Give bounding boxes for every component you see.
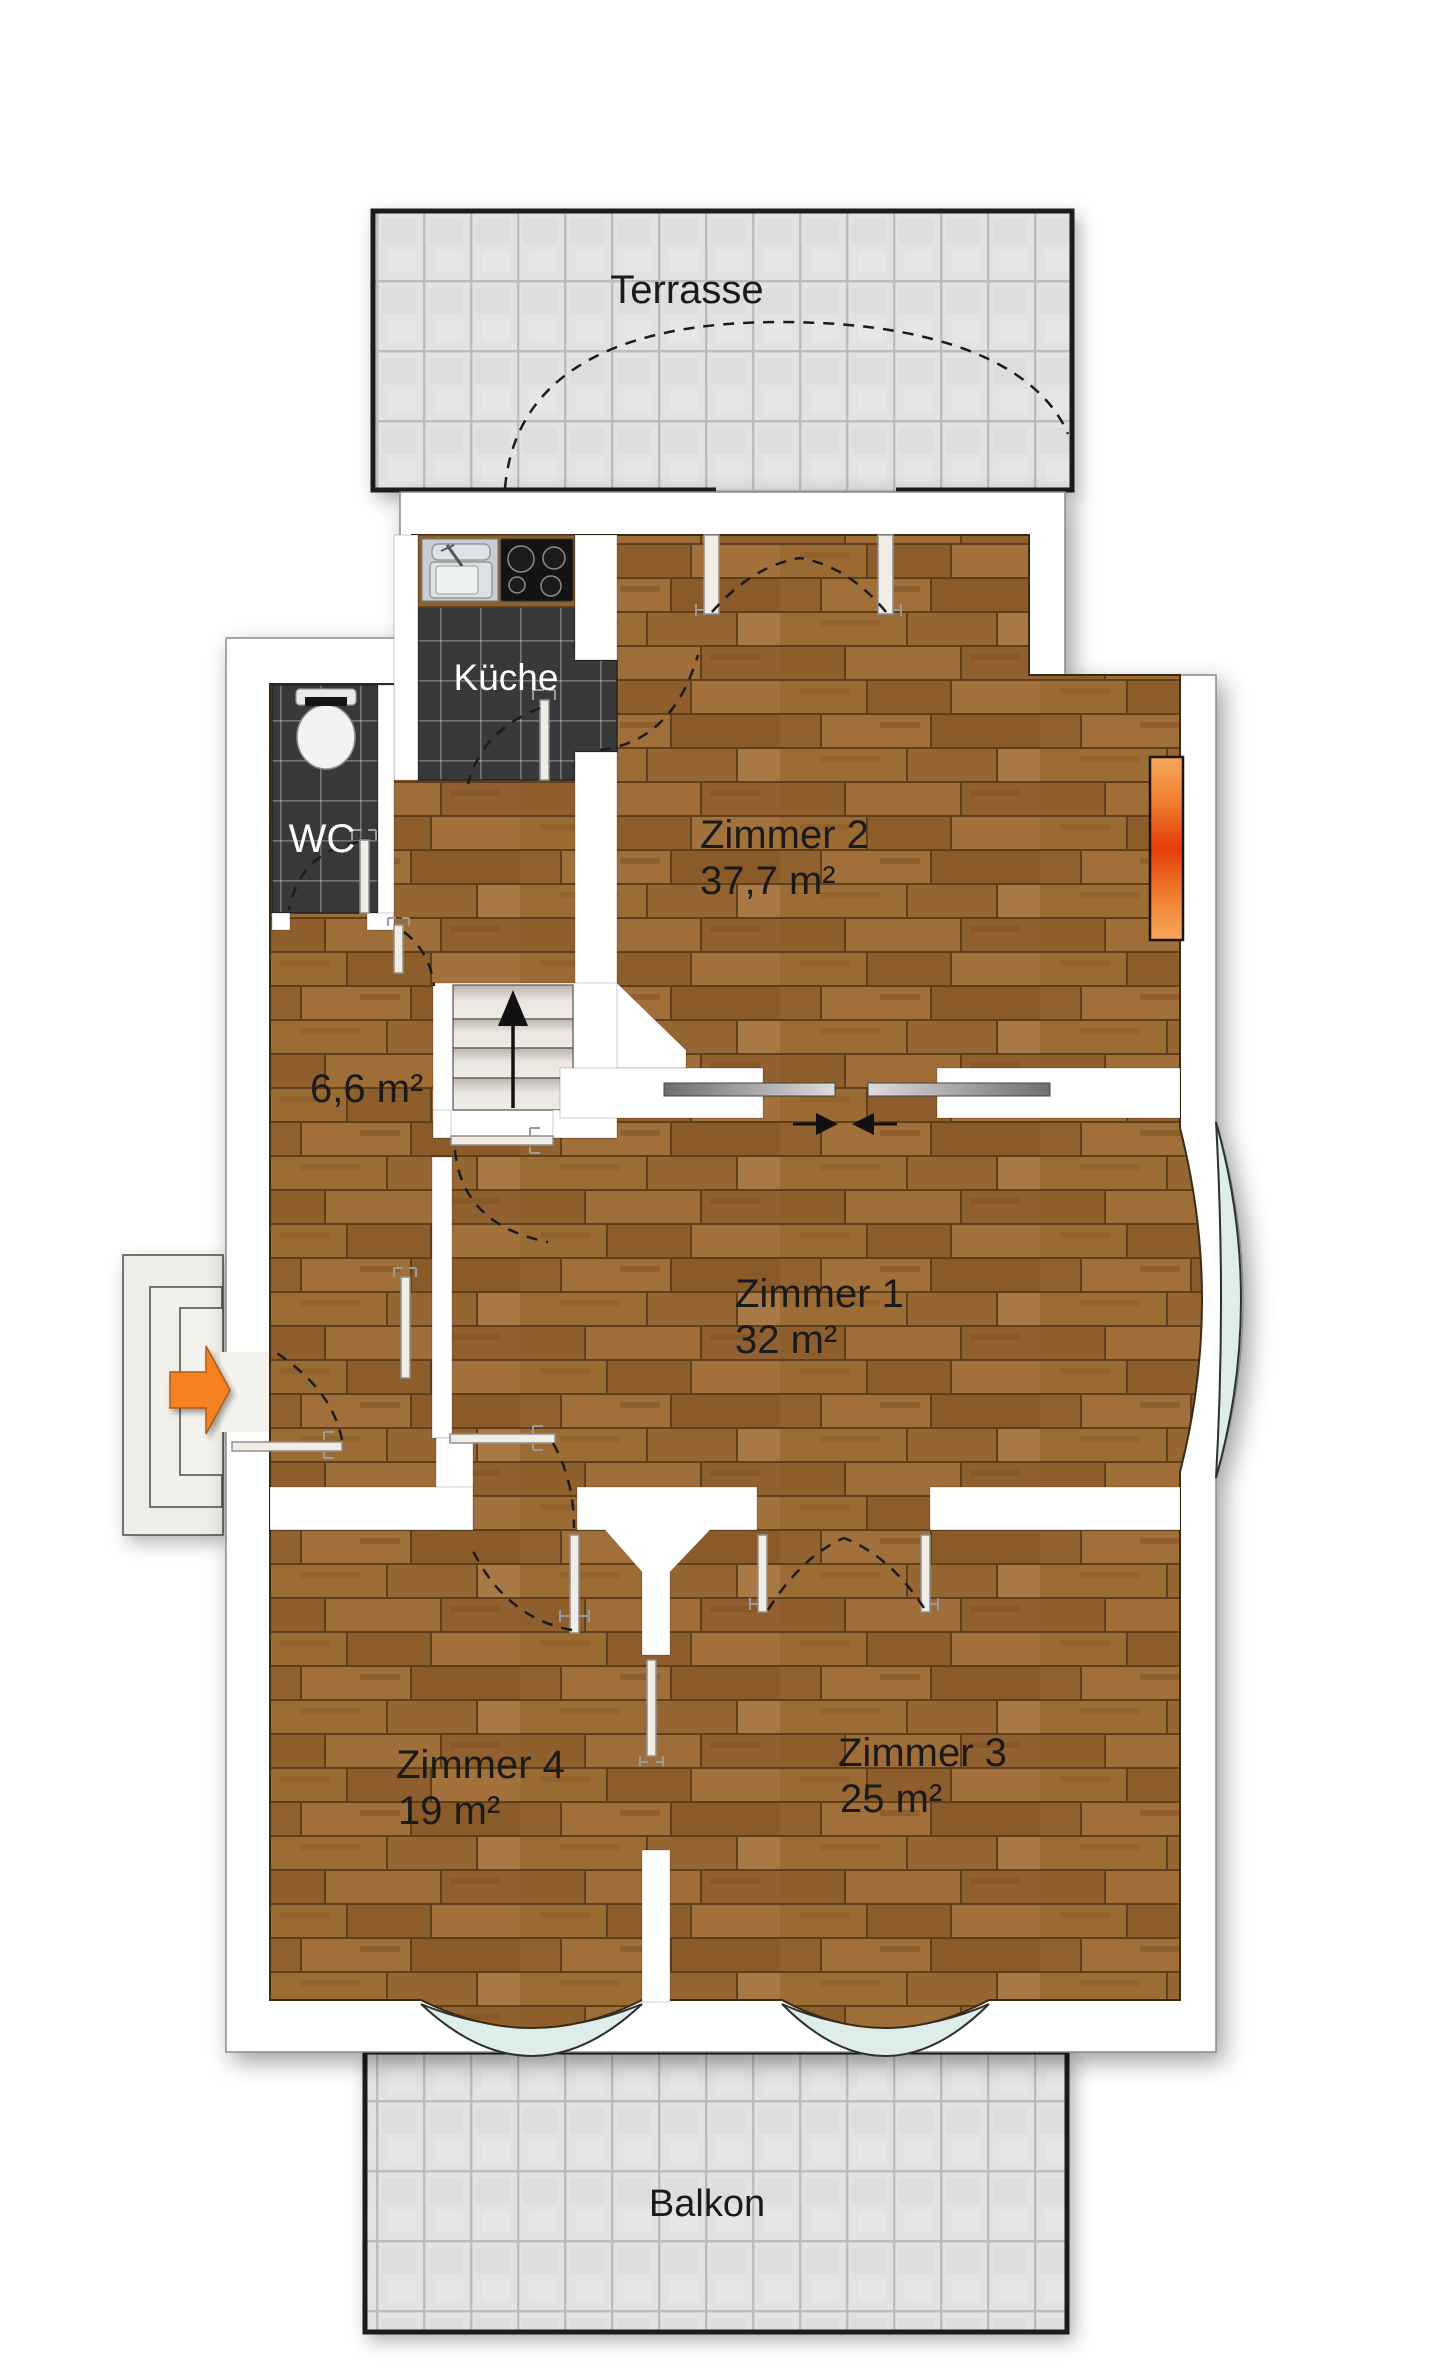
- sliding-door-right: [868, 1083, 1050, 1096]
- terrace-label: Terrasse: [610, 268, 763, 312]
- zimmer4-label: Zimmer 4: [396, 1743, 565, 1787]
- door-leaf-entrance: [232, 1442, 342, 1451]
- door-leaf-terrace-right: [878, 535, 893, 614]
- door-leaf-zimmer4: [570, 1535, 579, 1633]
- zimmer2-area-label: 37,7 m²: [700, 859, 836, 903]
- floorplan-canvas: Terrasse: [0, 0, 1438, 2375]
- wall-z1-z4: [270, 1487, 473, 1530]
- wall-corridor-stub: [432, 1157, 452, 1438]
- door-leaf-understair: [451, 1136, 553, 1145]
- burner-icon: [508, 546, 534, 572]
- door-leaf-corridor: [401, 1277, 410, 1378]
- burner-icon: [541, 576, 561, 596]
- toilet-seat-edge: [305, 697, 347, 706]
- zimmer2-label: Zimmer 2: [700, 813, 869, 857]
- door-leaf-terrace-left: [704, 535, 719, 614]
- door-leaf-kitchen: [540, 700, 549, 780]
- wall-z4-z3-divider: [642, 1850, 670, 2002]
- wall-wc-bottom-right: [367, 913, 394, 930]
- door-leaf-hall: [394, 925, 403, 973]
- wall-wc-bottom-left: [272, 913, 290, 930]
- burner-icon: [509, 577, 525, 593]
- burner-icon: [543, 547, 565, 569]
- floorplan-page: Terrasse: [0, 0, 1438, 2375]
- kitchen-counter: [418, 535, 575, 607]
- zimmer1-area-label: 32 m²: [735, 1318, 837, 1362]
- zimmer1-label: Zimmer 1: [735, 1272, 904, 1316]
- sink-drainer: [432, 544, 490, 560]
- wall-kitchen-zimmer2-upper: [575, 535, 617, 660]
- zimmer4-area-label: 19 m²: [398, 1789, 500, 1833]
- door-leaf-zimmer3-right: [921, 1535, 930, 1612]
- sliding-door-left: [664, 1083, 835, 1096]
- wall-wc-right: [378, 685, 394, 930]
- kitchen-label: Küche: [454, 657, 559, 698]
- door-leaf-wc: [360, 840, 369, 913]
- toilet: [296, 689, 356, 769]
- zimmer3-label: Zimmer 3: [838, 1731, 1007, 1775]
- balcony-label: Balkon: [649, 2183, 765, 2225]
- toilet-bowl: [297, 705, 355, 769]
- door-leaf-z4-z3: [647, 1660, 656, 1756]
- wc-label: WC: [289, 817, 356, 861]
- door-leaf-zimmer1: [450, 1434, 555, 1443]
- wall-understair-left: [433, 1110, 451, 1138]
- wall-kitchen-left: [394, 535, 418, 780]
- terrace: [373, 211, 1072, 536]
- sink-basin: [436, 566, 478, 594]
- door-leaf-zimmer3-left: [758, 1535, 767, 1612]
- radiator: [1150, 757, 1183, 940]
- wall-z1-z3-right: [930, 1487, 1180, 1530]
- zimmer3-area-label: 25 m²: [840, 1777, 942, 1821]
- hall-area-label: 6,6 m²: [310, 1067, 423, 1111]
